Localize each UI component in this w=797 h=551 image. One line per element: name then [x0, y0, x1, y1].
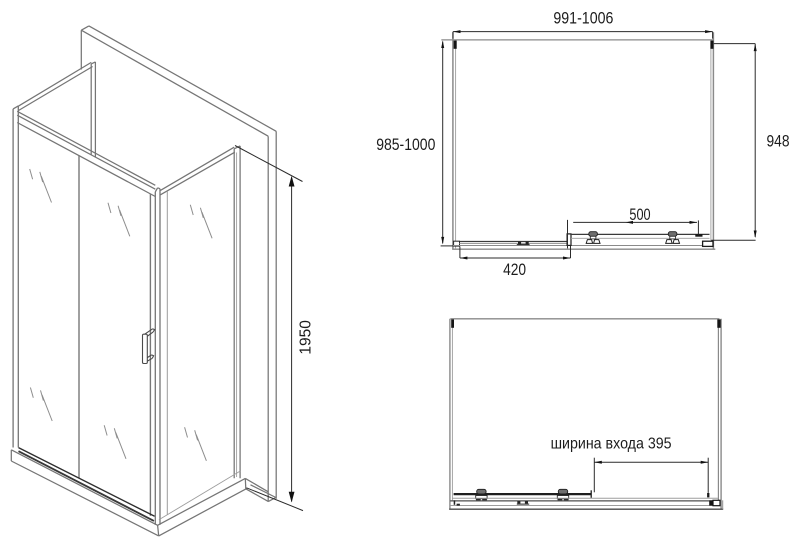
svg-text:985-1000: 985-1000 [376, 136, 435, 154]
svg-text:ширина входа 395: ширина входа 395 [551, 435, 672, 452]
svg-text:991-1006: 991-1006 [553, 9, 613, 27]
svg-text:500: 500 [629, 206, 650, 224]
svg-text:420: 420 [503, 261, 526, 279]
svg-text:1950: 1950 [298, 320, 315, 355]
svg-text:948: 948 [767, 132, 790, 150]
